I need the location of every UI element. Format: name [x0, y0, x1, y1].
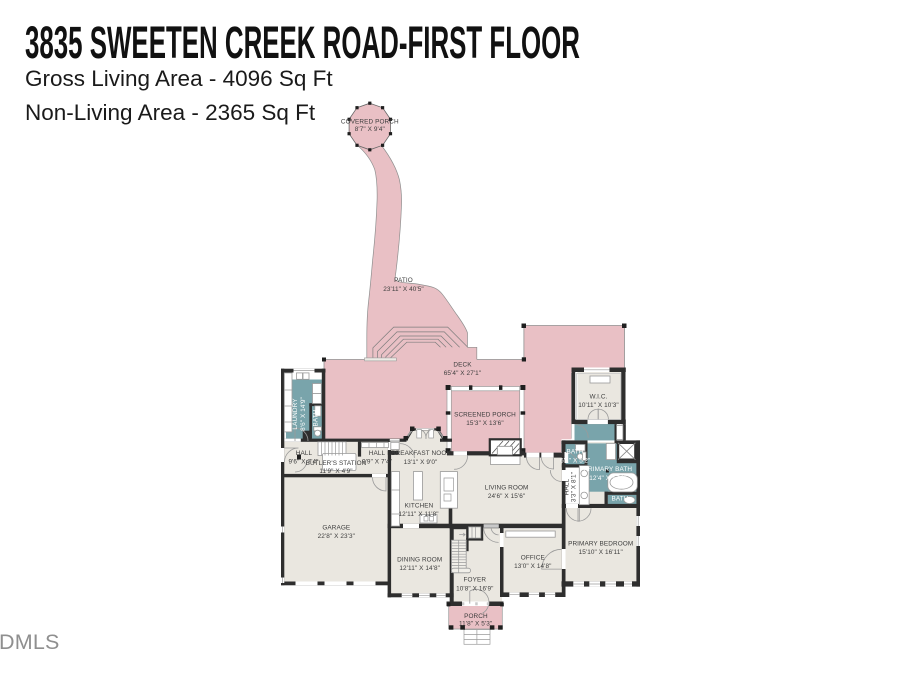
svg-text:DINING ROOM: DINING ROOM	[397, 557, 442, 564]
svg-text:11'9" X 4'9": 11'9" X 4'9"	[319, 468, 352, 475]
svg-text:DECK: DECK	[453, 362, 472, 369]
svg-text:13'0" X 14'8": 13'0" X 14'8"	[514, 563, 551, 570]
svg-text:9'9" X 7'4": 9'9" X 7'4"	[362, 459, 392, 466]
svg-text:BUTLER'S STATION: BUTLER'S STATION	[306, 460, 367, 467]
svg-text:BATH: BATH	[612, 496, 629, 503]
svg-text:12'11" X 14'8": 12'11" X 14'8"	[399, 565, 440, 572]
svg-text:HALL: HALL	[564, 478, 571, 495]
svg-text:BATH: BATH	[567, 449, 584, 456]
svg-text:24'6" X 15'6": 24'6" X 15'6"	[488, 493, 525, 500]
svg-text:PATIO: PATIO	[394, 277, 413, 284]
svg-text:W.I.C.: W.I.C.	[590, 394, 608, 401]
svg-text:PRIMARY BEDROOM: PRIMARY BEDROOM	[568, 541, 633, 548]
svg-text:23'11" X 40'5": 23'11" X 40'5"	[383, 286, 424, 293]
svg-text:12'4" X 17'8": 12'4" X 17'8"	[589, 475, 626, 482]
svg-text:PRIMARY BATH: PRIMARY BATH	[584, 466, 633, 473]
svg-text:8'7" X 9'4": 8'7" X 9'4"	[355, 126, 385, 133]
svg-text:BREAKFAST NOOK: BREAKFAST NOOK	[391, 450, 451, 457]
svg-text:LIVING ROOM: LIVING ROOM	[485, 485, 529, 492]
svg-text:BATH: BATH	[313, 409, 320, 426]
svg-text:15'3" X 13'6": 15'3" X 13'6"	[466, 420, 503, 427]
svg-text:KITCHEN: KITCHEN	[405, 503, 434, 510]
svg-text:11'8" X 5'3": 11'8" X 5'3"	[459, 620, 492, 627]
svg-text:12'11" X 11'8": 12'11" X 11'8"	[399, 511, 439, 518]
svg-text:22'8" X 23'3": 22'8" X 23'3"	[318, 533, 355, 540]
svg-text:HALL: HALL	[296, 450, 313, 457]
svg-text:10'8" X 16'9": 10'8" X 16'9"	[456, 586, 493, 593]
svg-text:OFFICE: OFFICE	[521, 555, 545, 562]
svg-text:15'10" X 16'11": 15'10" X 16'11"	[579, 549, 623, 556]
svg-text:8'6" X 14'9": 8'6" X 14'9"	[300, 397, 307, 431]
svg-text:13'1" X 9'0": 13'1" X 9'0"	[404, 459, 438, 466]
svg-text:FOYER: FOYER	[464, 577, 487, 584]
svg-text:3'3" X 8'1": 3'3" X 8'1"	[571, 472, 578, 502]
svg-text:PORCH: PORCH	[464, 613, 488, 620]
svg-text:65'4" X 27'1": 65'4" X 27'1"	[444, 370, 481, 377]
svg-text:SCREENED PORCH: SCREENED PORCH	[454, 412, 516, 419]
svg-text:10'11" X 10'3": 10'11" X 10'3"	[578, 402, 619, 409]
svg-text:LAUNDRY: LAUNDRY	[292, 398, 299, 430]
svg-text:HALL: HALL	[369, 450, 386, 457]
svg-text:COVERED PORCH: COVERED PORCH	[341, 119, 399, 126]
svg-text:GARAGE: GARAGE	[322, 525, 350, 532]
svg-text:6'1" X 5'2": 6'1" X 5'2"	[560, 458, 590, 465]
